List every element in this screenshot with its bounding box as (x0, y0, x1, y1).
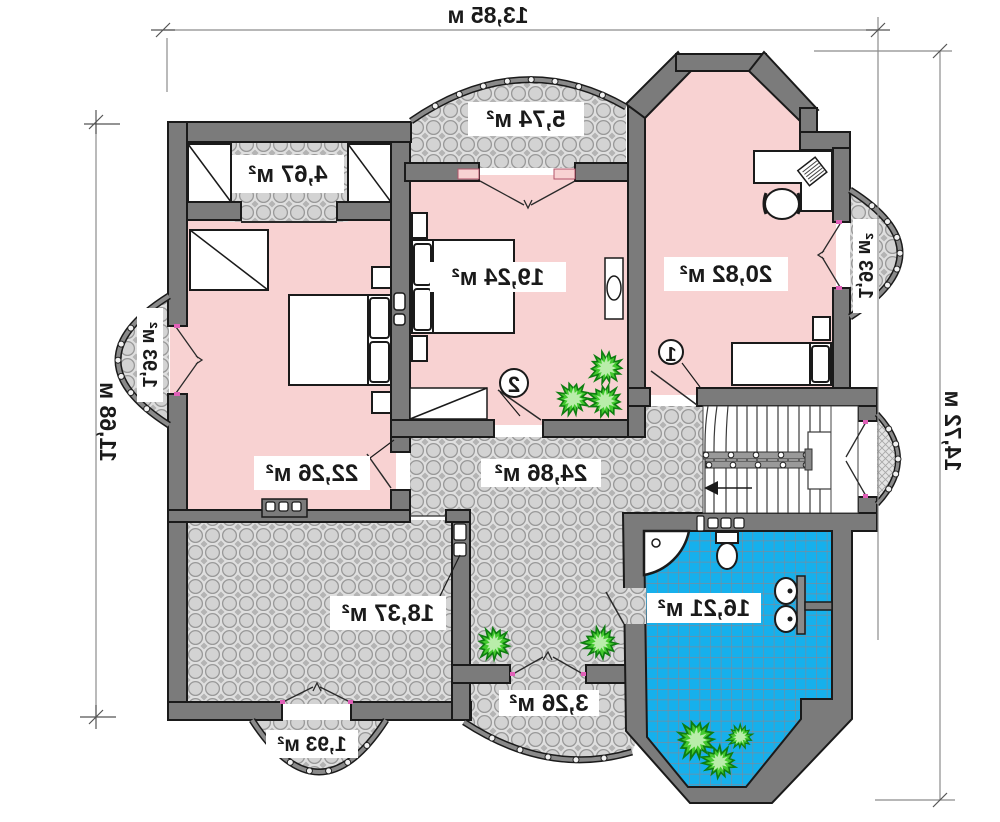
svg-text:4,67 м²: 4,67 м² (248, 161, 327, 188)
svg-text:14,72 м: 14,72 м (940, 391, 966, 472)
svg-text:16,21 м²: 16,21 м² (658, 595, 750, 622)
svg-text:1,93 м²: 1,93 м² (138, 322, 160, 388)
svg-text:1: 1 (665, 344, 676, 366)
svg-text:18,37 м²: 18,37 м² (342, 600, 434, 627)
svg-text:20,82 м²: 20,82 м² (680, 261, 772, 288)
svg-text:2: 2 (508, 372, 520, 397)
svg-text:3,26 м²: 3,26 м² (509, 690, 588, 717)
svg-text:1,93 м²: 1,93 м² (854, 233, 876, 299)
svg-text:19,24 м²: 19,24 м² (452, 264, 544, 291)
svg-text:13,85 м: 13,85 м (448, 2, 529, 28)
svg-text:1,93 м²: 1,93 м² (277, 733, 346, 756)
svg-text:5,74 м²: 5,74 м² (486, 106, 565, 133)
svg-text:24,86 м²: 24,86 м² (495, 460, 587, 487)
svg-text:22,26 м²: 22,26 м² (266, 460, 358, 487)
svg-text:11,68 м: 11,68 м (95, 382, 121, 462)
